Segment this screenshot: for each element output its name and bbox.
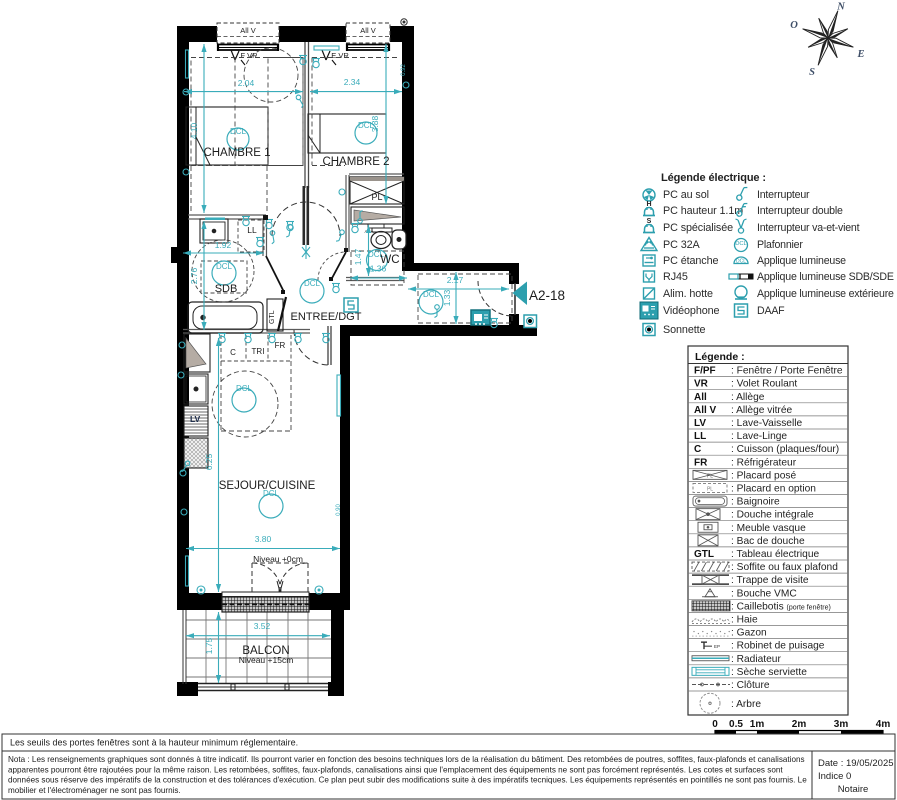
svg-text:F/PF: F/PF xyxy=(694,366,716,377)
svg-text:1.33: 1.33 xyxy=(442,289,452,306)
svg-text:2.76: 2.76 xyxy=(189,267,199,284)
svg-text:DCL: DCL xyxy=(736,259,746,265)
svg-text:1m: 1m xyxy=(750,719,765,730)
svg-text:WC: WC xyxy=(380,254,399,266)
svg-text:: Gazon: : Gazon xyxy=(731,628,767,639)
svg-text:Date : 19/05/2025: Date : 19/05/2025 xyxy=(818,758,894,769)
svg-text:GTL: GTL xyxy=(694,549,714,560)
svg-text:Applique lumineuse extérieure: Applique lumineuse extérieure xyxy=(757,288,894,300)
svg-text:1.47: 1.47 xyxy=(353,248,363,265)
svg-text:CHAMBRE 2: CHAMBRE 2 xyxy=(322,156,389,168)
svg-text:: Radiateur: : Radiateur xyxy=(731,654,781,665)
svg-text:PC étanche: PC étanche xyxy=(663,255,719,267)
svg-text:: Sèche serviette: : Sèche serviette xyxy=(731,667,807,678)
svg-text:F VR: F VR xyxy=(240,51,258,60)
svg-text:mobilier et l'électroménager n: mobilier et l'électroménager ne sont pas… xyxy=(8,786,181,795)
svg-text:0: 0 xyxy=(712,719,718,730)
svg-text:Légende électrique :: Légende électrique : xyxy=(661,172,766,184)
svg-text:PC au sol: PC au sol xyxy=(663,189,709,201)
svg-text:LL: LL xyxy=(694,431,706,442)
svg-text:: Allège vitrée: : Allège vitrée xyxy=(731,405,792,416)
svg-text:Notaire: Notaire xyxy=(838,784,869,795)
svg-text:: Trappe de visite: : Trappe de visite xyxy=(731,575,809,586)
svg-text:: Meuble vasque: : Meuble vasque xyxy=(731,523,806,534)
svg-text:Applique lumineuse: Applique lumineuse xyxy=(757,255,846,267)
svg-text:E VR: E VR xyxy=(331,51,349,60)
svg-text:O: O xyxy=(790,20,798,31)
svg-text:: Lave-Linge: : Lave-Linge xyxy=(731,431,787,442)
svg-text:All V: All V xyxy=(240,26,255,35)
svg-text:FR: FR xyxy=(275,341,286,350)
svg-text:: Cuisson (plaques/four): : Cuisson (plaques/four) xyxy=(731,444,839,455)
svg-text:Interrupteur va-et-vient: Interrupteur va-et-vient xyxy=(757,222,860,234)
svg-text:PC 32A: PC 32A xyxy=(663,239,701,251)
svg-text:: Haie: : Haie xyxy=(731,614,758,625)
svg-text:: Clôture: : Clôture xyxy=(731,680,770,691)
svg-text:: Robinet de puisage: : Robinet de puisage xyxy=(731,641,825,652)
svg-text:apparentes pourront être rajou: apparentes pourront être rajoutées pour … xyxy=(8,765,783,774)
svg-text:: Bouche VMC: : Bouche VMC xyxy=(731,588,797,599)
svg-text:Applique lumineuse SDB/SDE: Applique lumineuse SDB/SDE xyxy=(757,271,894,283)
svg-text:: Arbre: : Arbre xyxy=(731,699,761,710)
svg-text:VR: VR xyxy=(694,379,709,390)
svg-text:RJ45: RJ45 xyxy=(663,271,688,283)
svg-text:All: All xyxy=(694,392,707,403)
svg-text:SEJOUR/CUISINE: SEJOUR/CUISINE xyxy=(219,480,316,492)
svg-text:: Baignoire: : Baignoire xyxy=(731,497,780,508)
svg-text:: Tableau électrique: : Tableau électrique xyxy=(731,549,819,560)
svg-text:DCL: DCL xyxy=(216,262,233,271)
svg-text:Plafonnier: Plafonnier xyxy=(757,239,803,251)
svg-text:C: C xyxy=(230,348,236,357)
svg-text:S: S xyxy=(809,67,815,78)
svg-text:Niveau +0cm: Niveau +0cm xyxy=(253,554,303,564)
svg-text:: Bac de douche: : Bac de douche xyxy=(731,536,805,547)
svg-text:Interrupteur: Interrupteur xyxy=(757,189,810,201)
svg-text:TRI: TRI xyxy=(252,347,265,356)
svg-text:PL: PL xyxy=(707,486,713,492)
svg-text:Vidéophone: Vidéophone xyxy=(663,305,720,317)
svg-text:: Soffite ou faux plafond: : Soffite ou faux plafond xyxy=(731,562,838,573)
svg-text:PC hauteur 1.1m: PC hauteur 1.1m xyxy=(663,205,743,217)
svg-text:H: H xyxy=(646,201,651,208)
svg-text:Alim. hotte: Alim. hotte xyxy=(663,288,713,300)
svg-text:E: E xyxy=(856,49,864,60)
svg-text:LV: LV xyxy=(190,414,201,424)
svg-text:0.92: 0.92 xyxy=(401,64,407,76)
svg-text:1.75: 1.75 xyxy=(204,637,214,654)
svg-text:: Réfrigérateur: : Réfrigérateur xyxy=(731,457,797,468)
svg-text:ENTREE/DGT: ENTREE/DGT xyxy=(291,311,362,323)
svg-text:: Placard en option: : Placard en option xyxy=(731,483,816,494)
svg-text:LV: LV xyxy=(694,418,706,429)
svg-text:: Fenêtre / Porte Fenêtre: : Fenêtre / Porte Fenêtre xyxy=(731,366,843,377)
svg-text:PL: PL xyxy=(707,473,713,479)
svg-text:LL: LL xyxy=(247,225,257,235)
svg-text:3m: 3m xyxy=(834,719,849,730)
svg-text:C: C xyxy=(694,444,701,455)
svg-text:0.90: 0.90 xyxy=(336,504,342,516)
svg-text:All V: All V xyxy=(694,405,717,416)
svg-text:données sous réserve des impér: données sous réserve des impératifs de l… xyxy=(8,776,807,785)
svg-text:0.5: 0.5 xyxy=(729,719,743,730)
svg-text:DAAF: DAAF xyxy=(757,305,785,317)
svg-text:4m: 4m xyxy=(876,719,891,730)
svg-text:: Volet Roulant: : Volet Roulant xyxy=(731,379,797,390)
svg-text:Interrupteur double: Interrupteur double xyxy=(757,205,843,217)
svg-text:2m: 2m xyxy=(792,719,807,730)
svg-text:EP: EP xyxy=(714,644,720,649)
svg-text:FR: FR xyxy=(694,457,708,468)
svg-text:A2-18: A2-18 xyxy=(529,288,565,303)
svg-text:Indice 0: Indice 0 xyxy=(818,771,851,782)
svg-text:: Douche intégrale: : Douche intégrale xyxy=(731,510,814,521)
svg-text:Nota : Les renseignements grap: Nota : Les renseignements graphiques son… xyxy=(8,755,805,764)
svg-text:1.92: 1.92 xyxy=(215,240,232,250)
svg-text:4.10: 4.10 xyxy=(189,122,199,139)
svg-text:Légende :: Légende : xyxy=(695,351,745,363)
svg-text:All V: All V xyxy=(360,26,375,35)
svg-text:: Lave-Vaisselle: : Lave-Vaisselle xyxy=(731,418,802,429)
svg-text:Sonnette: Sonnette xyxy=(663,324,706,336)
svg-text:: Allège: : Allège xyxy=(731,392,765,403)
svg-text:DCL: DCL xyxy=(735,241,747,247)
svg-text:3.80: 3.80 xyxy=(255,534,272,544)
svg-text:2.04: 2.04 xyxy=(238,78,255,88)
svg-text:GTL: GTL xyxy=(269,310,276,324)
svg-text:SDB: SDB xyxy=(215,283,238,295)
svg-text:Niveau +15cm: Niveau +15cm xyxy=(239,655,294,665)
svg-text:6.25: 6.25 xyxy=(204,453,214,470)
svg-text:3.52: 3.52 xyxy=(254,621,271,631)
svg-text:2.34: 2.34 xyxy=(344,77,361,87)
svg-text:CHAMBRE 1: CHAMBRE 1 xyxy=(203,147,270,159)
svg-text:: Placard posé: : Placard posé xyxy=(731,470,796,481)
svg-text:Les seuils des portes fenêtres: Les seuils des portes fenêtres sont à la… xyxy=(10,738,298,748)
svg-text:PC spécialisée: PC spécialisée xyxy=(663,222,733,234)
svg-text:N: N xyxy=(836,2,845,13)
svg-text:S: S xyxy=(647,218,652,225)
svg-text:PL: PL xyxy=(371,192,382,202)
